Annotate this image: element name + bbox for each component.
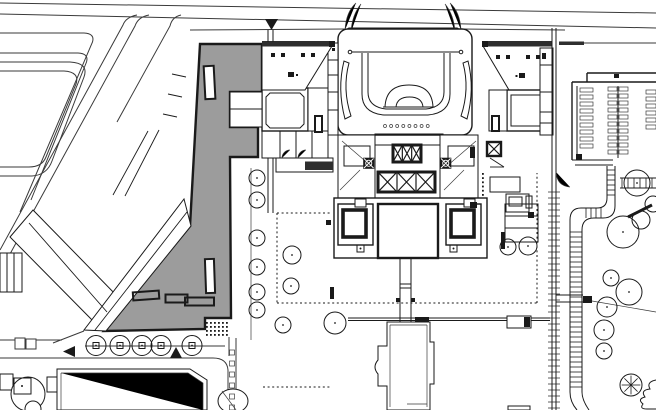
old-building-stair-box	[0, 253, 22, 292]
west-entry-triangle-icon	[63, 346, 75, 357]
column-dot	[296, 74, 298, 76]
column-dot	[311, 53, 315, 57]
tree-icon	[632, 211, 650, 229]
column-dot	[614, 74, 619, 78]
site-plan-svg: Theater site plan with shaded new buildi…	[0, 0, 656, 410]
new-building	[84, 44, 262, 331]
column-dot	[516, 75, 518, 77]
right-building	[572, 73, 656, 165]
column-dot	[542, 53, 546, 57]
column-dot	[470, 202, 477, 208]
column-dot	[332, 48, 335, 51]
column-dot	[526, 55, 530, 59]
column-dot	[411, 298, 415, 302]
east-annex	[505, 204, 538, 242]
rear-hall	[378, 204, 438, 258]
south-entry-triangle-icon	[170, 347, 182, 358]
column-dot	[271, 53, 275, 57]
column-dot	[536, 55, 540, 59]
bottom-buildings	[0, 316, 531, 410]
column-dot	[326, 220, 331, 225]
auditorium-block	[338, 29, 472, 135]
column-dot	[329, 41, 335, 47]
column-dot	[519, 73, 525, 78]
stage-elevators	[364, 142, 501, 192]
column-dot	[396, 298, 400, 302]
column-dot	[288, 72, 294, 77]
hatch-strip	[559, 42, 584, 46]
west-pavilion	[262, 46, 332, 90]
column-dot	[496, 55, 500, 59]
site-plan-canvas: Theater site plan with shaded new buildi…	[0, 0, 656, 410]
tree-icon	[645, 196, 656, 212]
column-dot	[506, 55, 510, 59]
column-dot	[482, 41, 488, 47]
hedge-edge	[640, 380, 656, 409]
north-entry-triangle-icon	[265, 19, 278, 30]
access-road	[548, 28, 656, 410]
south-path	[400, 258, 411, 322]
column-dot	[576, 154, 582, 160]
column-dot	[470, 147, 475, 158]
chapel-footprint	[375, 322, 434, 410]
lightwell-slot-bottom	[205, 259, 215, 293]
column-dot	[301, 53, 305, 57]
lightwell-slot-top	[204, 66, 216, 99]
column-dot	[528, 212, 534, 218]
column-dot	[281, 53, 285, 57]
